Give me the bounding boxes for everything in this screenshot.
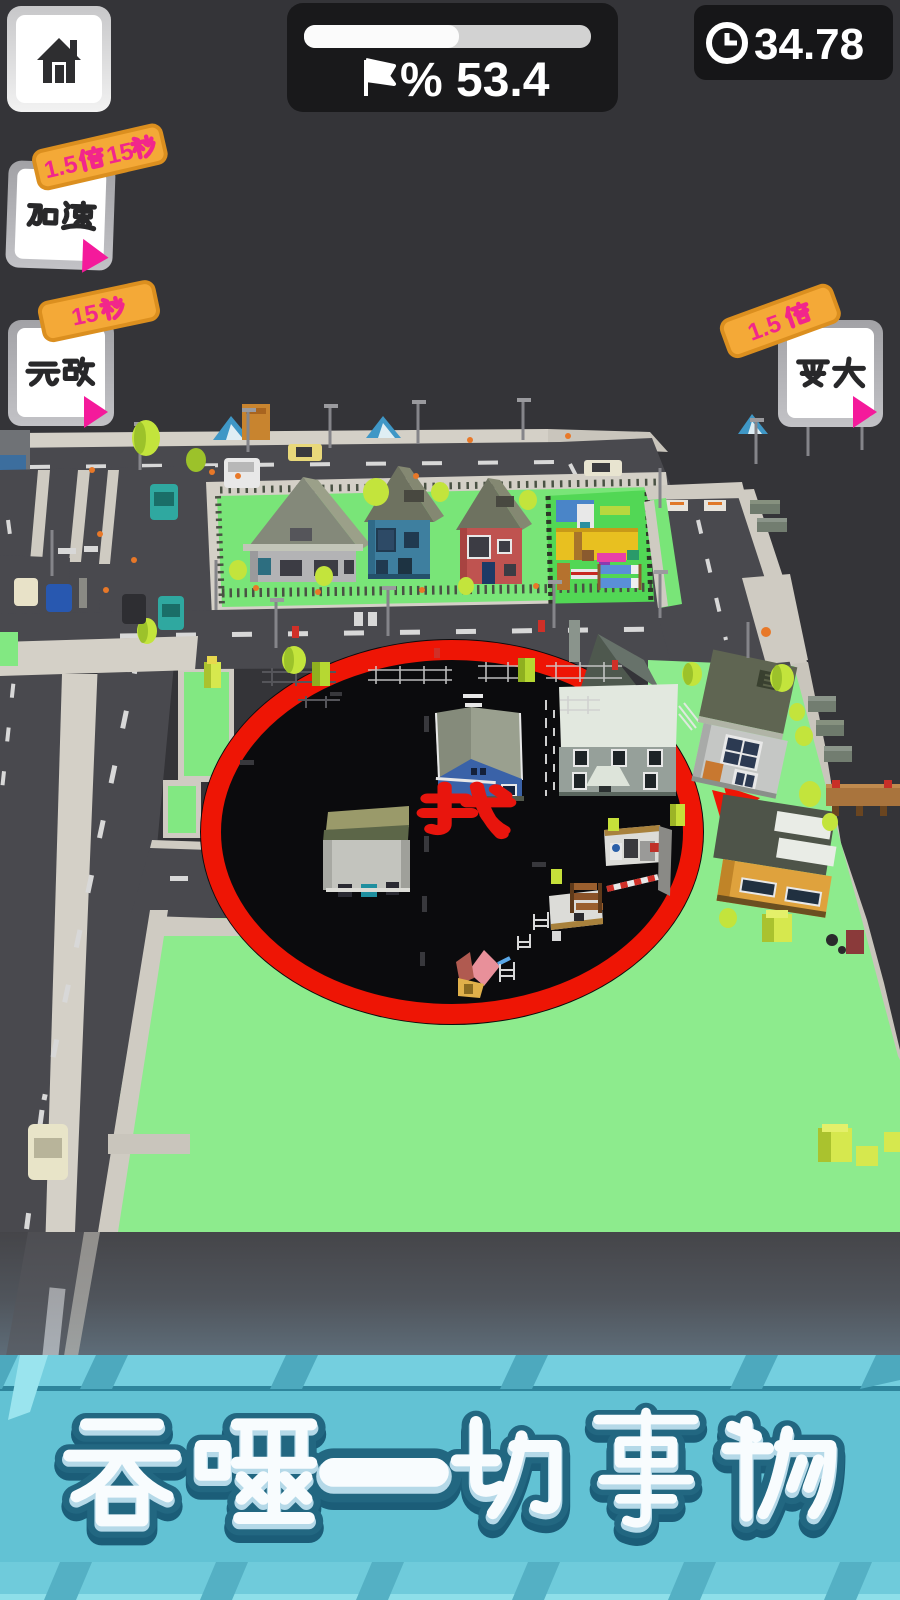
svg-text:34.78: 34.78: [754, 20, 864, 69]
svg-text:% 53.4: % 53.4: [400, 54, 550, 107]
svg-text:15: 15: [69, 300, 101, 332]
